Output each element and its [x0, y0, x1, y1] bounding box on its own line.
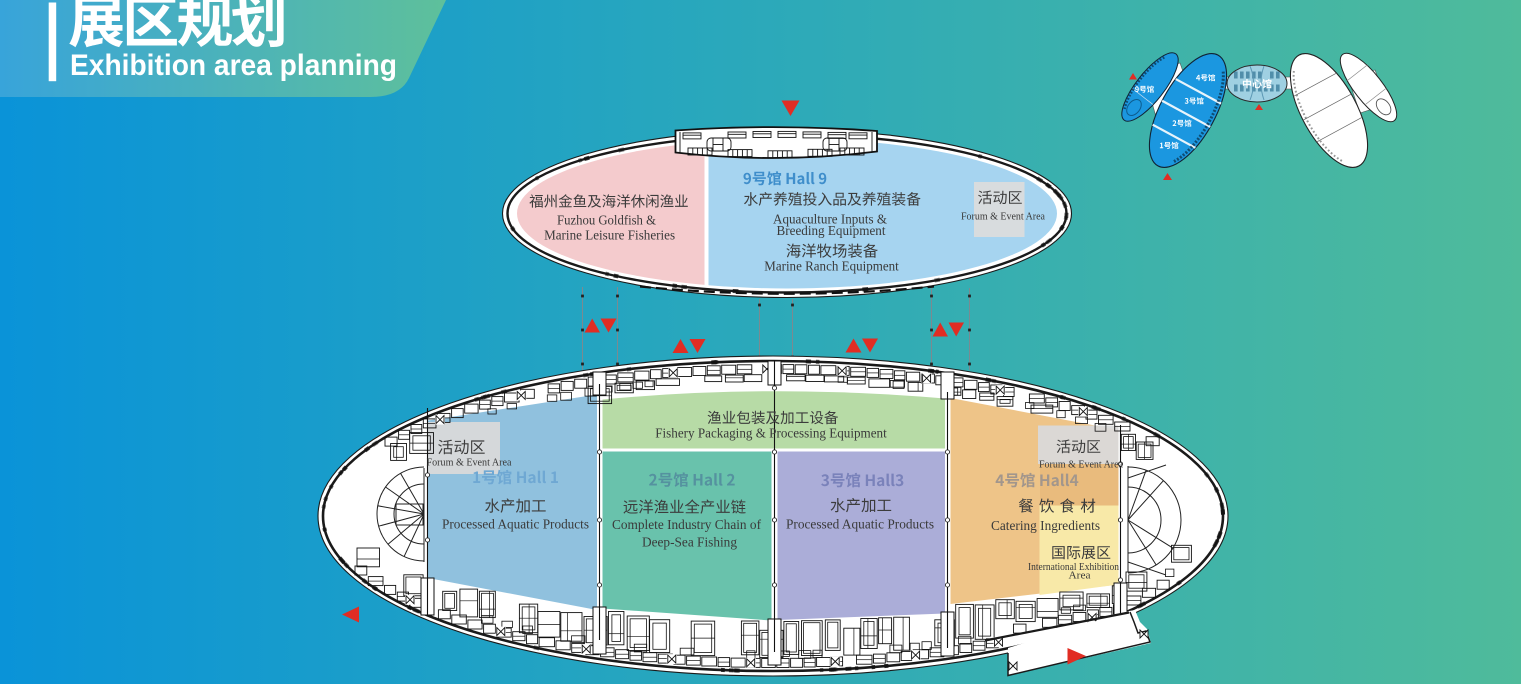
svg-text:Exhibition area planning: Exhibition area planning: [70, 49, 397, 82]
svg-text:Catering Ingredients: Catering Ingredients: [991, 519, 1100, 534]
svg-text:Processed Aquatic Products: Processed Aquatic Products: [786, 518, 934, 533]
svg-text:Breeding Equipment: Breeding Equipment: [777, 224, 886, 239]
svg-text:Marine Ranch Equipment: Marine Ranch Equipment: [764, 260, 899, 275]
svg-text:Forum & Event Area: Forum & Event Area: [961, 211, 1045, 223]
svg-text:Area: Area: [1069, 570, 1091, 582]
svg-text:Forum & Event Area: Forum & Event Area: [1039, 459, 1123, 471]
svg-text:Marine Leisure Fisheries: Marine Leisure Fisheries: [544, 229, 675, 244]
svg-text:Complete Industry Chain of: Complete Industry Chain of: [612, 518, 761, 533]
svg-text:Fishery Packaging & Processing: Fishery Packaging & Processing Equipment: [655, 427, 887, 442]
svg-text:Fuzhou Goldfish &: Fuzhou Goldfish &: [557, 214, 656, 229]
svg-text:Deep-Sea Fishing: Deep-Sea Fishing: [642, 536, 737, 551]
svg-text:Processed Aquatic Products: Processed Aquatic Products: [442, 518, 589, 533]
svg-text:Forum & Event Area: Forum & Event Area: [427, 457, 512, 469]
